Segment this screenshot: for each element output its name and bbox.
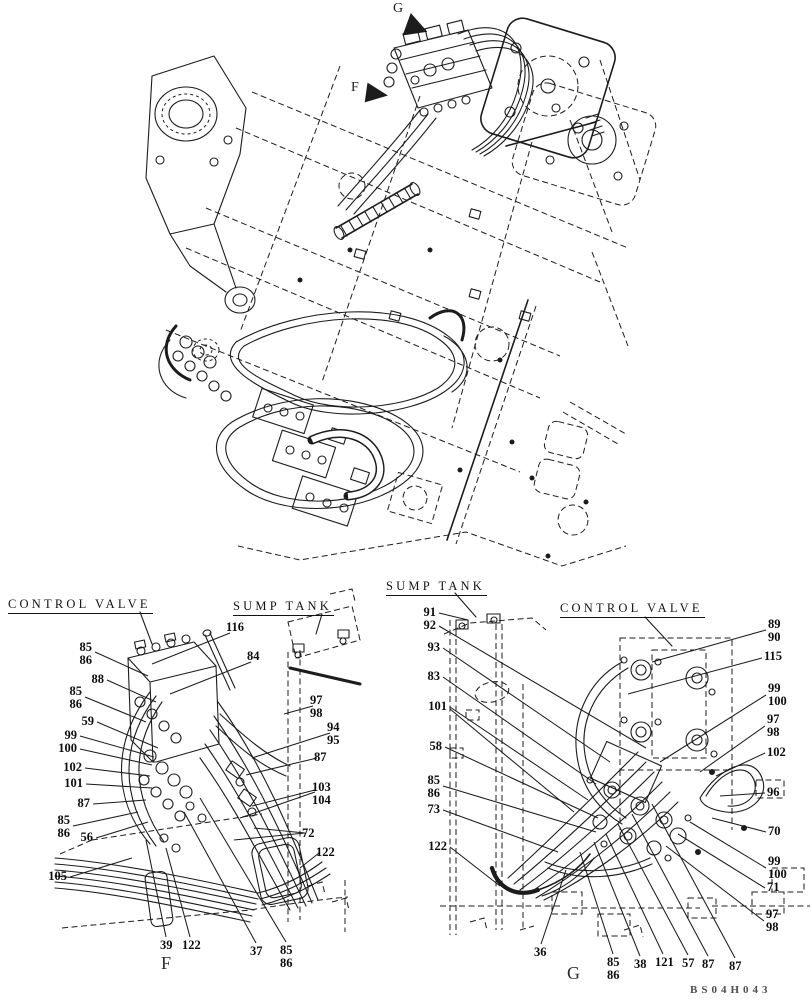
leader-line: [712, 818, 766, 832]
leader-line: [720, 793, 765, 796]
leader-line: [660, 695, 766, 762]
leader-line: [580, 852, 613, 954]
leader-line: [594, 842, 640, 956]
leader-line: [445, 747, 598, 818]
leader-line: [85, 697, 146, 722]
leader-line: [439, 613, 468, 620]
leader-line: [254, 828, 305, 833]
detail-f-art: [55, 589, 360, 932]
leader-line: [252, 790, 315, 806]
detail-g-art: [440, 593, 810, 937]
leader-line: [107, 680, 156, 702]
leader-line: [443, 786, 596, 832]
leader-line: [443, 677, 596, 784]
leader-line: [85, 768, 150, 776]
leader-line: [80, 749, 152, 765]
leader-line: [252, 733, 330, 758]
parts-diagram-page: GF 8586888586599910010210187858656105116…: [0, 0, 812, 1000]
detail-f-leaders: [70, 633, 330, 943]
leader-line: [652, 804, 735, 958]
leader-line: [541, 870, 566, 944]
leader-line: [73, 812, 138, 826]
top-view-art: [146, 13, 659, 566]
leader-line: [443, 810, 558, 852]
leader-line: [80, 736, 154, 757]
leader-line: [678, 834, 765, 888]
line-art: [0, 0, 812, 1000]
drawing-code: BS04H043: [690, 984, 772, 996]
leader-line: [439, 626, 646, 748]
leader-line: [652, 630, 766, 662]
leader-line: [93, 800, 146, 804]
leader-line: [450, 707, 588, 800]
leader-line: [152, 633, 230, 664]
leader-line: [443, 648, 610, 762]
leader-line: [716, 753, 765, 776]
